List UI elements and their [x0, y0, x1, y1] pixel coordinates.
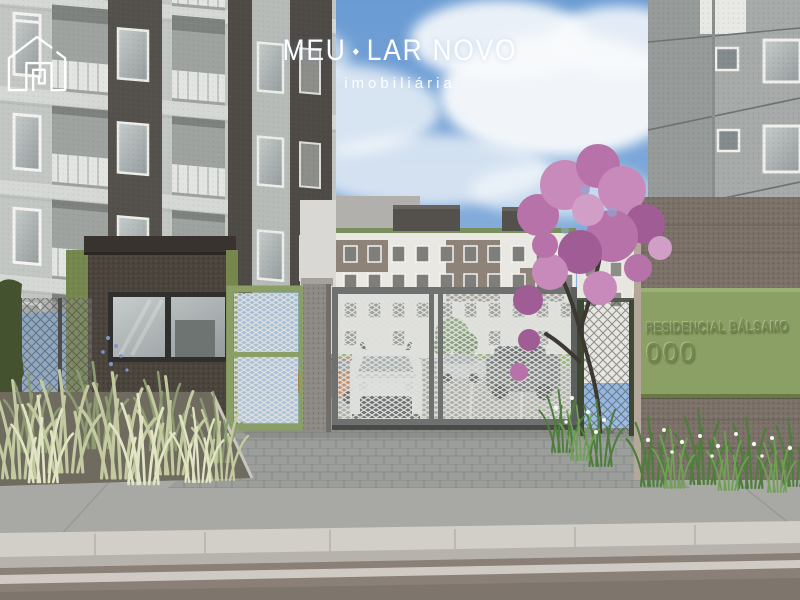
- scene-artwork: [0, 0, 800, 600]
- sign-panel: [641, 288, 800, 398]
- right-fence: [577, 298, 637, 436]
- guardhouse-window: [108, 292, 230, 362]
- gate-pillar: [301, 278, 333, 432]
- right-building: [648, 0, 800, 214]
- pedestrian-gate: [230, 289, 302, 427]
- render-scene: MEU◆LAR NOVO imobiliária RESIDENCIAL BÁL…: [0, 0, 800, 600]
